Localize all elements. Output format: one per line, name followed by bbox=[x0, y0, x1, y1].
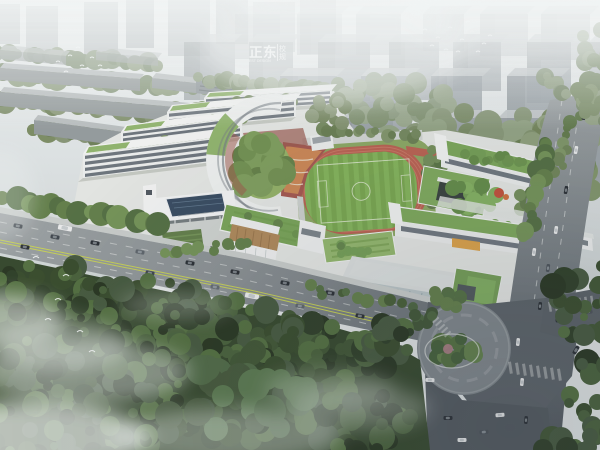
svg-text:正东: 正东 bbox=[249, 44, 277, 60]
svg-text:规: 规 bbox=[279, 52, 286, 61]
svg-text:校: 校 bbox=[279, 44, 286, 53]
svg-text:EST DESIGN: EST DESIGN bbox=[249, 59, 271, 63]
